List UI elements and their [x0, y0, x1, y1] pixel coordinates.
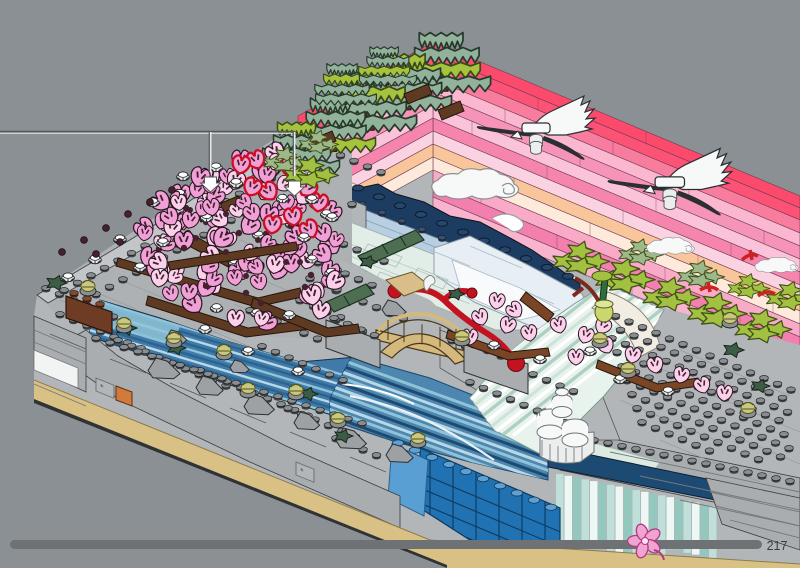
svg-text:217: 217: [767, 539, 788, 553]
svg-text:*: *: [300, 466, 304, 477]
svg-text:*: *: [100, 382, 104, 393]
